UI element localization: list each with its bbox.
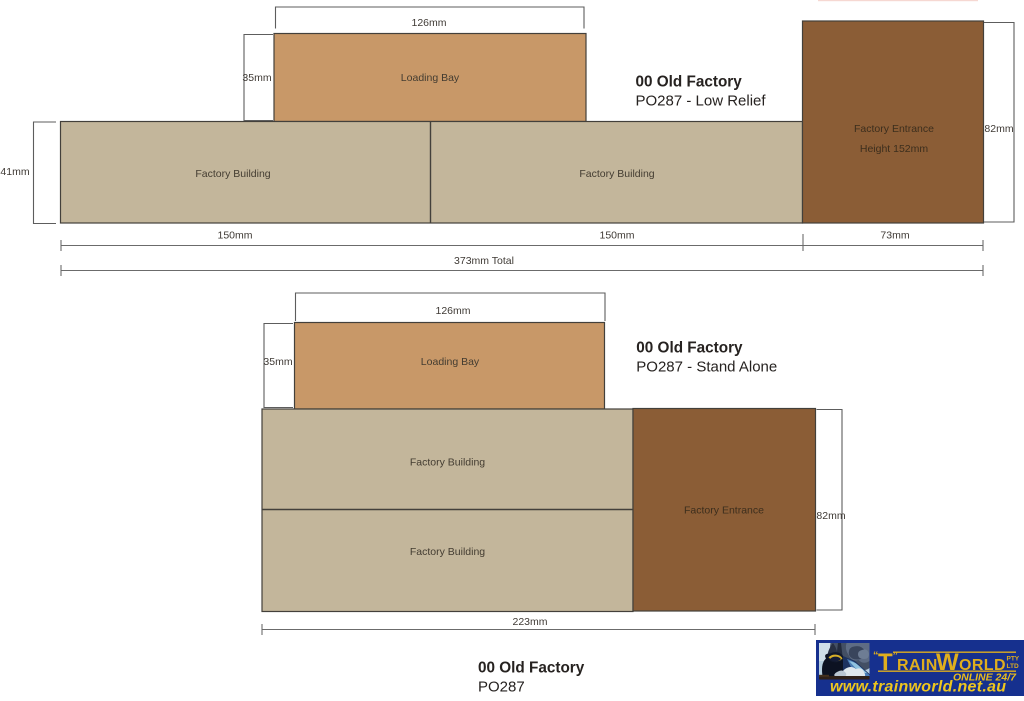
svg-text:82mm: 82mm xyxy=(984,123,1013,135)
svg-text:Factory Building: Factory Building xyxy=(195,168,270,180)
svg-text:LTD: LTD xyxy=(1007,663,1019,670)
svg-text:41mm: 41mm xyxy=(0,166,29,178)
svg-text:T: T xyxy=(878,649,893,676)
svg-text:82mm: 82mm xyxy=(816,510,845,522)
svg-text:PO287: PO287 xyxy=(478,679,525,696)
svg-text:00 Old Factory: 00 Old Factory xyxy=(478,659,585,676)
svg-text:00 Old Factory: 00 Old Factory xyxy=(636,340,743,357)
svg-text:RAIN: RAIN xyxy=(897,657,938,674)
svg-text:Loading Bay: Loading Bay xyxy=(401,72,460,84)
svg-text:00 Old Factory: 00 Old Factory xyxy=(636,74,743,91)
svg-text:Loading Bay: Loading Bay xyxy=(421,356,480,368)
svg-text:Factory Entrance: Factory Entrance xyxy=(854,123,934,135)
svg-text:73mm: 73mm xyxy=(880,230,909,242)
svg-text:PTY: PTY xyxy=(1007,656,1020,663)
svg-text:35mm: 35mm xyxy=(263,356,292,368)
svg-text:www.trainworld.net.au: www.trainworld.net.au xyxy=(830,679,1006,696)
svg-text:Factory Building: Factory Building xyxy=(410,457,485,469)
svg-text:126mm: 126mm xyxy=(435,305,470,317)
svg-text:373mm Total: 373mm Total xyxy=(454,255,514,267)
svg-text:Height 152mm: Height 152mm xyxy=(860,143,929,155)
svg-text:223mm: 223mm xyxy=(512,616,547,628)
svg-text:Factory Entrance: Factory Entrance xyxy=(684,505,764,517)
svg-text:35mm: 35mm xyxy=(242,72,271,84)
svg-text:PO287 - Low Relief: PO287 - Low Relief xyxy=(636,93,767,110)
svg-text:Factory Building: Factory Building xyxy=(579,168,654,180)
svg-text:Factory Building: Factory Building xyxy=(410,546,485,558)
svg-text:150mm: 150mm xyxy=(217,230,252,242)
svg-text:PO287 - Stand Alone: PO287 - Stand Alone xyxy=(636,359,777,376)
svg-text:126mm: 126mm xyxy=(411,17,446,29)
svg-text:150mm: 150mm xyxy=(599,230,634,242)
